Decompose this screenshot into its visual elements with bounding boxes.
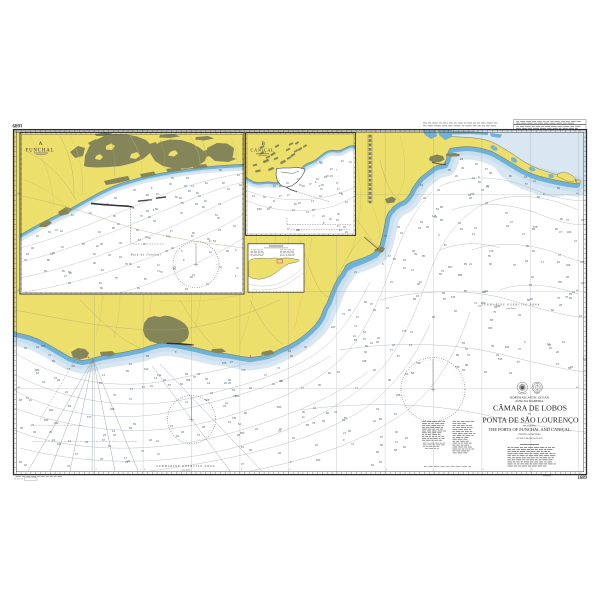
svg-text:457: 457 <box>558 280 563 284</box>
svg-text:577: 577 <box>87 415 92 419</box>
svg-text:194: 194 <box>57 442 62 446</box>
svg-text:575: 575 <box>533 225 538 229</box>
svg-text:563: 563 <box>44 418 49 422</box>
svg-text:373: 373 <box>489 249 494 253</box>
svg-text:775: 775 <box>402 329 407 333</box>
svg-text:498: 498 <box>110 407 115 411</box>
svg-text:SUBMARINE EXERCISE AREA: SUBMARINE EXERCISE AREA <box>482 304 541 307</box>
svg-text:812: 812 <box>316 458 321 462</box>
svg-text:1689: 1689 <box>12 122 23 127</box>
svg-text:A: A <box>39 141 43 147</box>
svg-text:795: 795 <box>455 365 460 369</box>
svg-text:THE PORTS OF FUNCHAL AND CANIÇ: THE PORTS OF FUNCHAL AND CANIÇAL <box>489 428 572 432</box>
svg-text:B: B <box>262 141 266 147</box>
svg-text:40′: 40′ <box>576 192 579 195</box>
svg-text:438: 438 <box>362 359 367 363</box>
svg-text:CÂMARA DE LOBOS: CÂMARA DE LOBOS <box>493 404 567 412</box>
svg-text:40′: 40′ <box>18 386 21 389</box>
svg-text:505: 505 <box>205 398 210 402</box>
svg-text:515: 515 <box>498 357 503 361</box>
svg-text:(see Note): (see Note) <box>182 468 191 471</box>
svg-text:352: 352 <box>488 326 493 330</box>
svg-text:850: 850 <box>240 431 245 435</box>
svg-text:142: 142 <box>157 373 162 377</box>
svg-text:ILHA DA MADEIRA: ILHA DA MADEIRA <box>516 400 544 403</box>
svg-text:207: 207 <box>331 325 336 329</box>
svg-text:667: 667 <box>448 265 453 269</box>
svg-text:(see Note): (see Note) <box>507 307 516 310</box>
svg-text:823: 823 <box>505 345 510 349</box>
svg-text:700: 700 <box>241 368 246 372</box>
svg-text:885: 885 <box>458 273 463 277</box>
svg-text:513: 513 <box>144 367 149 371</box>
svg-text:TO: TO <box>528 413 531 416</box>
svg-text:1689: 1689 <box>578 476 588 481</box>
svg-text:820: 820 <box>481 301 486 305</box>
svg-text:Baía do Funchal: Baía do Funchal <box>131 254 162 257</box>
svg-text:902: 902 <box>49 408 54 412</box>
svg-text:258: 258 <box>396 393 401 397</box>
svg-text:DEPTHS IN METRES: DEPTHS IN METRES <box>519 434 542 436</box>
svg-text:781: 781 <box>232 416 237 420</box>
svg-text:40′: 40′ <box>576 386 579 389</box>
svg-text:40′: 40′ <box>576 289 579 292</box>
svg-text:485: 485 <box>41 344 46 348</box>
svg-text:493: 493 <box>54 421 59 425</box>
svg-text:SCALE 1:50 000 (lat 32°42'): SCALE 1:50 000 (lat 32°42') <box>517 437 543 440</box>
svg-text:266: 266 <box>566 263 571 267</box>
svg-text:876: 876 <box>222 361 227 365</box>
svg-text:145: 145 <box>432 214 437 218</box>
svg-text:CANIÇAL: CANIÇAL <box>251 148 275 153</box>
svg-text:322: 322 <box>567 230 572 234</box>
svg-text:795: 795 <box>416 361 421 365</box>
svg-text:366: 366 <box>186 378 191 382</box>
svg-text:560: 560 <box>277 405 282 409</box>
svg-text:PONTA DE SÃO LOURENÇO: PONTA DE SÃO LOURENÇO <box>483 414 579 424</box>
svg-text:674: 674 <box>451 295 456 299</box>
svg-text:SUBMARINE EXERCISE AREA: SUBMARINE EXERCISE AREA <box>157 465 216 468</box>
